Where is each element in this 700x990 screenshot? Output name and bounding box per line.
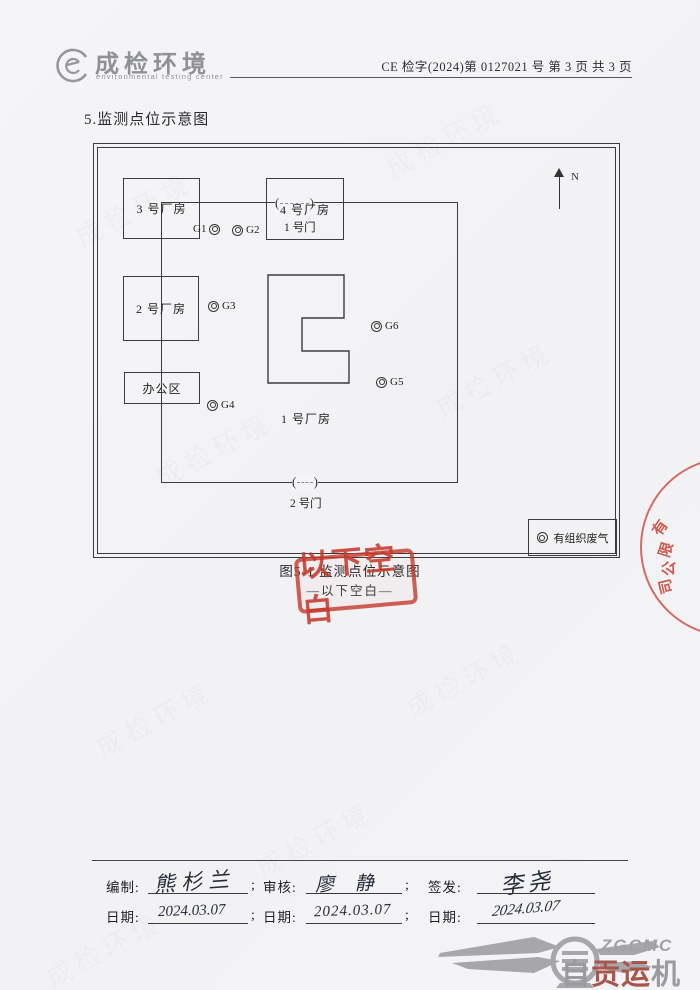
watermark-text: 成检环境 [89,672,219,765]
building-1-label: 1 号厂房 [281,410,331,427]
gate-2-opening: () [292,474,318,490]
legend-label: 有组织废气 [554,530,609,546]
date-underline [148,923,248,924]
point-g6-label: G6 [385,320,398,332]
point-g1-label: G1 [193,223,206,235]
signature-underline [477,893,595,894]
footer-logo-name: 自贡运机 [561,951,681,990]
company-name-en: environmental testing center [96,72,224,81]
footer-logo-char: 自 [561,959,591,990]
watermark-text: 成检环境 [399,632,529,725]
building-3: 3 号厂房 [123,178,200,239]
watermark-text: 成检环境 [39,902,169,990]
date-underline [306,923,402,924]
building-2: 2 号厂房 [123,276,199,341]
issued-date: 2024.03.07 [491,898,561,921]
legend-box: 有组织废气 [528,519,617,556]
company-logo-icon [55,47,91,83]
footer-logo-char: 运 [621,959,651,990]
separator: ; [405,878,409,894]
scanned-report-page: 成检环境 成检环境 成检环境 成检环境 成检环境 成检环境 成检环境 成检环境 … [0,0,700,990]
point-g3-label: G3 [222,300,235,312]
diagram-frame: N () 1 号门 () 2 号门 3 号厂房 4 号厂房 2 号厂房 办公区 … [93,143,620,558]
stack-gas-point-icon [232,225,243,236]
footer-logo-char: 机 [651,959,681,990]
date-label: 日期: [263,906,297,926]
signature-underline [306,893,402,894]
north-label: N [571,171,579,183]
header-divider [230,77,632,78]
issued-by-signature: 李尧 [498,861,556,901]
stack-gas-point-icon [209,224,220,235]
footer-logo-char: 贡 [591,959,621,990]
north-arrow-shaft [559,175,560,209]
point-g5-label: G5 [390,376,403,388]
stack-gas-point-icon [207,400,218,411]
monitor-point-g5: G5 [376,376,403,388]
stack-gas-point-icon [371,321,382,332]
document-number: CE 检字(2024)第 0127021 号 第 3 页 共 3 页 [381,56,632,75]
gate-2-label: 2 号门 [290,495,322,511]
company-seal-char: 公 [658,561,680,577]
blank-below-stamp: 以下空白 [294,548,418,614]
point-g2-label: G2 [246,224,259,236]
monitor-point-g2: G2 [232,224,259,236]
reviewed-date: 2024.03.07 [314,902,392,922]
issued-by-label: 签发: [428,876,462,896]
prepared-date: 2024.03.07 [158,902,226,921]
separator: ; [251,908,255,924]
section-title: 5.监测点位示意图 [84,108,209,129]
monitor-point-g4: G4 [207,399,234,411]
monitor-point-g3: G3 [208,300,235,312]
point-g4-label: G4 [221,399,234,411]
date-label: 日期: [428,906,462,926]
monitor-point-g6: G6 [371,320,398,332]
stack-gas-legend-icon [537,532,548,543]
date-label: 日期: [106,906,140,926]
reviewed-by-label: 审核: [263,876,297,896]
monitor-point-g1: G1 [193,223,220,235]
signature-underline [148,893,248,894]
stack-gas-point-icon [208,301,219,312]
separator: ; [405,908,409,924]
building-4: 4 号厂房 [266,178,344,240]
office-area: 办公区 [124,372,200,404]
prepared-by-label: 编制: [106,876,140,896]
building-1-outline [267,274,351,384]
separator: ; [251,878,255,894]
date-underline [477,923,595,924]
stack-gas-point-icon [376,377,387,388]
